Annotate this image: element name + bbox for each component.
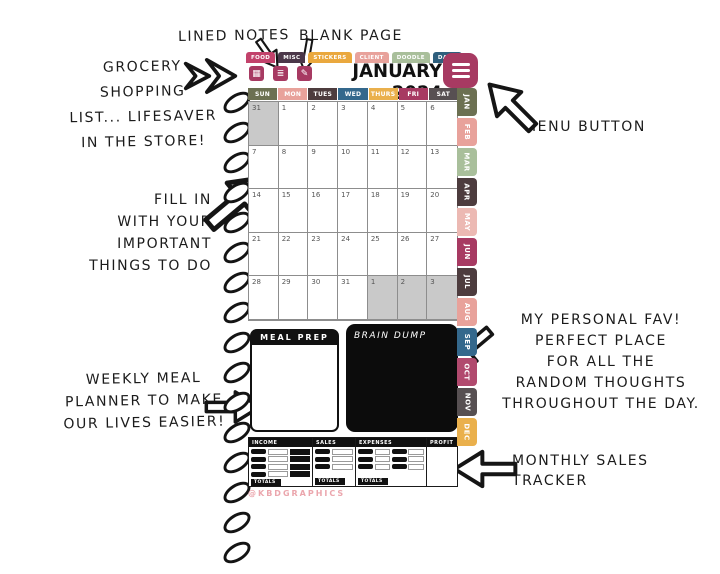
calendar-cell[interactable]: 14 xyxy=(249,189,279,233)
calendar-cell[interactable]: 3 xyxy=(338,102,368,146)
mockup-canvas: LINED NOTES BLANK PAGE GROCERY SHOPPING … xyxy=(0,0,720,540)
note-line: IMPORTANT xyxy=(80,233,212,255)
blank-page-button[interactable]: ✎ xyxy=(297,66,312,81)
weekday-fri: FRI xyxy=(399,88,428,100)
calendar-cell[interactable]: 28 xyxy=(249,276,279,320)
calendar-cell[interactable]: 9 xyxy=(308,146,338,190)
tracker-row[interactable] xyxy=(315,449,353,455)
calendar-cell[interactable]: 26 xyxy=(398,233,428,277)
sales-tracker: INCOME TOTALS SALES TOTALS xyxy=(248,437,458,487)
calendar-cell[interactable]: 21 xyxy=(249,233,279,277)
weekday-mon: MON xyxy=(278,88,307,100)
calendar-cell[interactable]: 7 xyxy=(249,146,279,190)
tracker-row[interactable] xyxy=(358,456,424,462)
calendar-cell[interactable]: 15 xyxy=(279,189,309,233)
lined-notes-button[interactable]: ≣ xyxy=(273,66,288,81)
tracker-column-header: PROFIT xyxy=(427,438,457,447)
calendar-cell[interactable]: 30 xyxy=(308,276,338,320)
note-weekly-meal: WEEKLY MEAL PLANNER TO MAKE OUR LIVES EA… xyxy=(61,367,226,436)
tab-food[interactable]: FOOD xyxy=(246,52,275,63)
tracker-profit-area[interactable] xyxy=(427,447,457,486)
tracker-totals: TOTALS xyxy=(315,478,345,485)
tracker-row[interactable] xyxy=(315,464,353,470)
calendar-cell[interactable]: 10 xyxy=(338,146,368,190)
month-tab-apr[interactable]: APR xyxy=(457,178,477,206)
spiral-coil xyxy=(220,537,254,567)
calendar-cell[interactable]: 23 xyxy=(308,233,338,277)
calendar-cell[interactable]: 29 xyxy=(279,276,309,320)
note-line: PERFECT PLACE xyxy=(487,331,715,352)
tracker-row[interactable] xyxy=(358,449,424,455)
tracker-row[interactable] xyxy=(315,456,353,462)
spiral-coil xyxy=(220,507,254,537)
month-tab-jun[interactable]: JUN xyxy=(457,238,477,266)
tracker-sales-column: SALES TOTALS xyxy=(313,438,356,486)
tracker-row[interactable] xyxy=(251,464,310,470)
calendar-cell[interactable]: 3 xyxy=(427,276,457,320)
weekday-thurs: THURS xyxy=(369,88,398,100)
weekday-wed: WED xyxy=(338,88,367,100)
brain-dump-title: BRAIN DUMP xyxy=(354,331,450,341)
hamburger-icon xyxy=(452,63,470,66)
tracker-row[interactable] xyxy=(251,456,310,462)
calendar-cell[interactable]: 1 xyxy=(279,102,309,146)
tracker-column-header: SALES xyxy=(313,438,355,447)
month-tab-oct[interactable]: OCT xyxy=(457,358,477,386)
note-line: MENU BUTTON xyxy=(524,117,674,139)
calendar-cell[interactable]: 24 xyxy=(338,233,368,277)
note-personal-fav: MY PERSONAL FAV! PERFECT PLACE FOR ALL T… xyxy=(487,310,715,415)
calendar-cell[interactable]: 31 xyxy=(338,276,368,320)
tracker-row[interactable] xyxy=(251,449,310,455)
tracker-income-column: INCOME TOTALS xyxy=(249,438,313,486)
note-line: MY PERSONAL FAV! xyxy=(487,310,715,331)
note-line: TRACKER xyxy=(512,471,672,491)
note-line: THINGS TO DO xyxy=(80,255,212,277)
note-menu-button: MENU BUTTON xyxy=(524,117,674,139)
hamburger-icon xyxy=(452,69,470,72)
month-tab-jan[interactable]: JAN xyxy=(457,88,477,116)
planner-page: FOOD MISC STICKERS CLIENT DOODLE DAILY ▦… xyxy=(246,50,482,502)
note-line: FOR ALL THE xyxy=(487,352,715,373)
calendar-cell[interactable]: 16 xyxy=(308,189,338,233)
month-tab-jul[interactable]: JUL xyxy=(457,268,477,296)
calendar-cell[interactable]: 5 xyxy=(398,102,428,146)
calendar-grid-icon: ▦ xyxy=(252,69,261,79)
lined-notes-icon: ≣ xyxy=(277,69,285,79)
note-monthly-sales: MONTHLY SALES TRACKER xyxy=(512,451,672,491)
note-line: RANDOM THOUGHTS xyxy=(487,373,715,394)
calendar-cell[interactable]: 17 xyxy=(338,189,368,233)
month-tabs: JAN FEB MAR APR MAY JUN JUL AUG SEP OCT … xyxy=(457,88,477,446)
month-tab-sep[interactable]: SEP xyxy=(457,328,477,356)
calendar-cell[interactable]: 6 xyxy=(427,102,457,146)
tracker-column-header: INCOME xyxy=(249,438,312,447)
note-line: MONTHLY SALES xyxy=(512,451,672,471)
tracker-row[interactable] xyxy=(251,471,310,477)
note-line: IN THE STORE! xyxy=(64,129,222,157)
calendar-cell[interactable]: 13 xyxy=(427,146,457,190)
month-tab-nov[interactable]: NOV xyxy=(457,388,477,416)
weekday-sat: SAT xyxy=(429,88,458,100)
calendar-cell[interactable]: 18 xyxy=(368,189,398,233)
menu-button[interactable] xyxy=(443,53,478,88)
calendar-cell[interactable]: 2 xyxy=(398,276,428,320)
calendar-cell[interactable]: 31 xyxy=(249,102,279,146)
weekday-sun: SUN xyxy=(248,88,277,100)
weekday-tues: TUES xyxy=(308,88,337,100)
calendar-cell[interactable]: 4 xyxy=(368,102,398,146)
note-line: WEEKLY MEAL xyxy=(61,367,225,392)
note-line: THROUGHOUT THE DAY. xyxy=(487,394,715,415)
tracker-totals: TOTALS xyxy=(251,479,281,486)
calendar-cell[interactable]: 2 xyxy=(308,102,338,146)
calendar-cell[interactable]: 20 xyxy=(427,189,457,233)
meal-prep-title: MEAL PREP xyxy=(251,330,338,345)
calendar-cell[interactable]: 19 xyxy=(398,189,428,233)
tab-label: FOOD xyxy=(251,55,270,61)
hamburger-icon xyxy=(452,75,470,78)
weekday-header: SUN MON TUES WED THURS FRI SAT xyxy=(248,88,458,100)
blank-page-icon: ✎ xyxy=(301,69,309,79)
tab-label: MISC xyxy=(283,55,300,61)
month-tab-feb[interactable]: FEB xyxy=(457,118,477,146)
month-tab-aug[interactable]: AUG xyxy=(457,298,477,326)
tracker-totals: TOTALS xyxy=(358,478,388,485)
calendar-cell[interactable]: 27 xyxy=(427,233,457,277)
calendar-cell[interactable]: 25 xyxy=(368,233,398,277)
tracker-profit-column: PROFIT xyxy=(427,438,457,486)
toolbar: ▦ ≣ ✎ xyxy=(249,66,312,81)
grocery-list-button[interactable]: ▦ xyxy=(249,66,264,81)
month-tab-may[interactable]: MAY xyxy=(457,208,477,236)
tracker-column-header: EXPENSES xyxy=(356,438,426,447)
calendar-cell[interactable]: 12 xyxy=(398,146,428,190)
note-line: OUR LIVES EASIER! xyxy=(62,411,226,436)
month-tab-mar[interactable]: MAR xyxy=(457,148,477,176)
calendar-cell[interactable]: 8 xyxy=(279,146,309,190)
watermark: @KBDGRAPHICS xyxy=(248,489,345,498)
calendar-cell[interactable]: 22 xyxy=(279,233,309,277)
note-line: WITH YOUR xyxy=(80,211,212,233)
tracker-row[interactable] xyxy=(358,464,424,470)
calendar-grid: 31 1 2 3 4 5 6 7 8 9 10 11 12 13 14 15 1… xyxy=(248,101,458,321)
calendar-cell[interactable]: 11 xyxy=(368,146,398,190)
brain-dump-box[interactable]: BRAIN DUMP xyxy=(346,324,458,432)
tracker-expenses-column: EXPENSES TOTALS xyxy=(356,438,427,486)
tab-misc[interactable]: MISC xyxy=(278,52,305,63)
note-line: PLANNER TO MAKE xyxy=(62,389,226,414)
month-tab-dec[interactable]: DEC xyxy=(457,418,477,446)
calendar-cell[interactable]: 1 xyxy=(368,276,398,320)
meal-prep-box[interactable]: MEAL PREP xyxy=(250,329,339,432)
note-line: LIST... LIFESAVER xyxy=(64,104,222,132)
